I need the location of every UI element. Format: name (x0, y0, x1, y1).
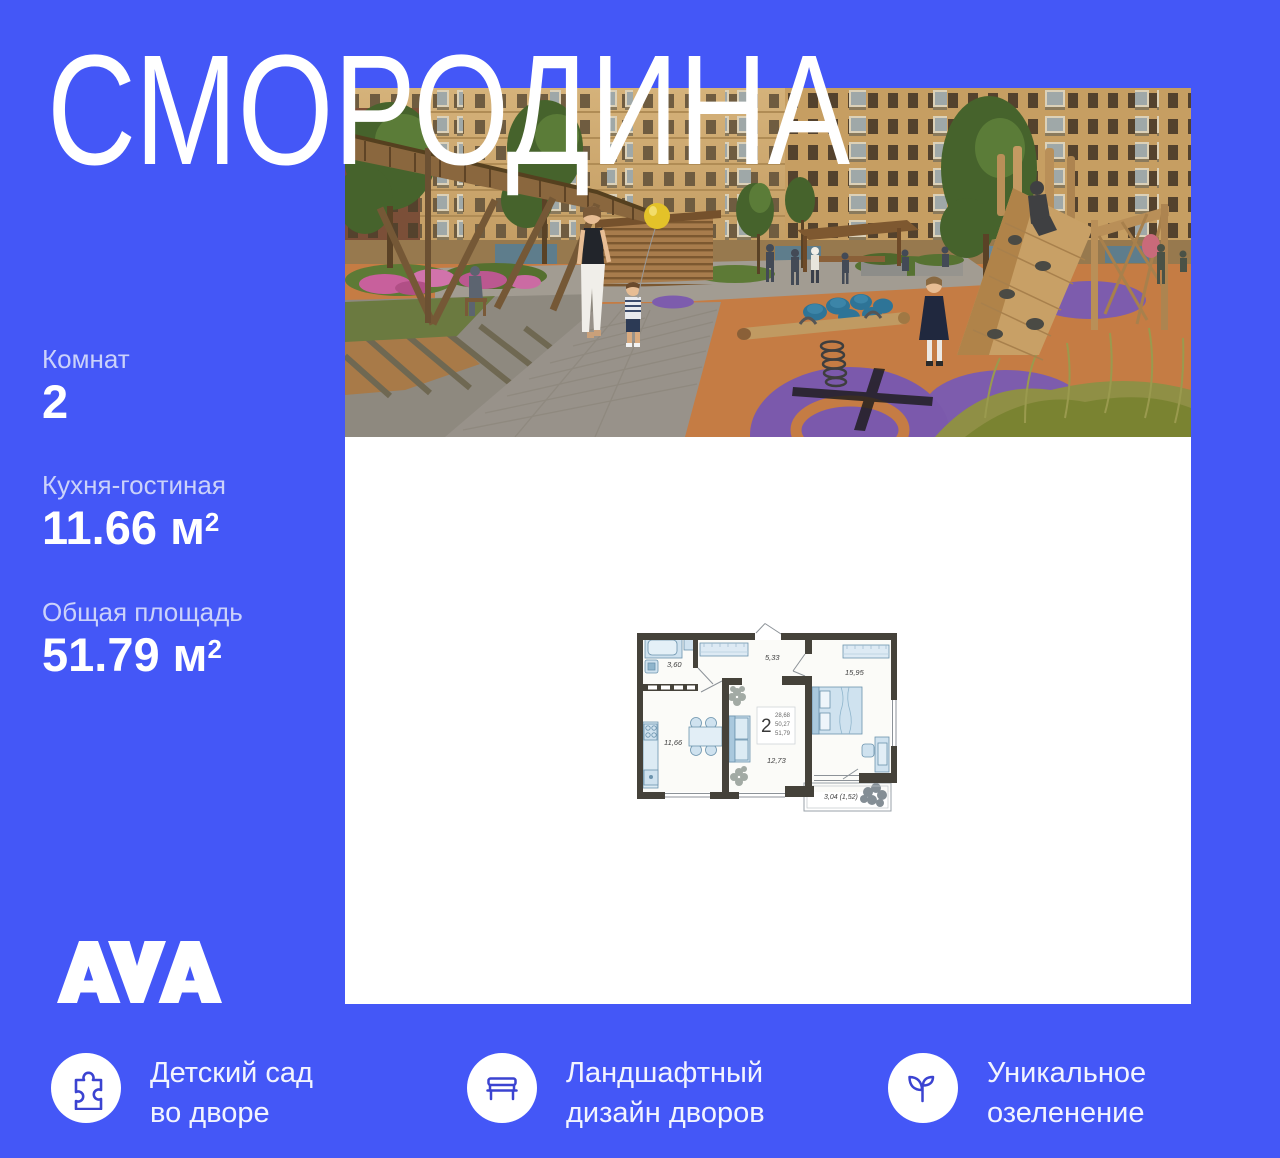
svg-text:3,04 (1,52): 3,04 (1,52) (824, 794, 858, 801)
svg-text:2: 2 (761, 716, 772, 737)
svg-text:3,60: 3,60 (667, 660, 682, 669)
svg-text:50,27: 50,27 (775, 722, 791, 728)
svg-text:12,73: 12,73 (767, 756, 787, 765)
svg-text:28,68: 28,68 (775, 713, 791, 719)
svg-text:51,79: 51,79 (775, 731, 791, 737)
svg-text:11,66: 11,66 (664, 738, 683, 747)
svg-text:15,95: 15,95 (845, 668, 865, 677)
svg-text:5,33: 5,33 (765, 653, 780, 662)
